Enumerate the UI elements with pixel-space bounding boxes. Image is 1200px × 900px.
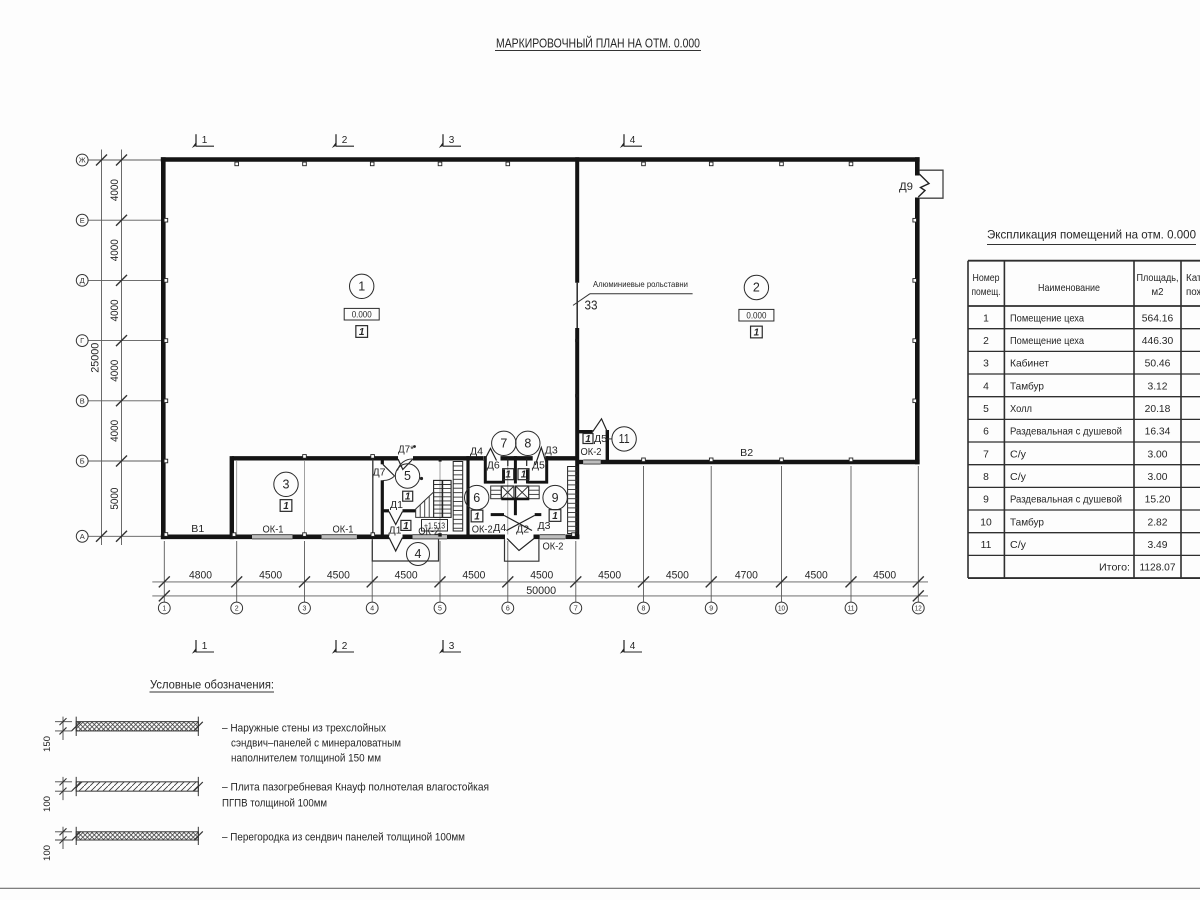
svg-text:1: 1 xyxy=(283,501,289,512)
svg-text:1: 1 xyxy=(983,313,989,324)
svg-text:4000: 4000 xyxy=(109,420,121,442)
svg-text:1: 1 xyxy=(202,135,208,146)
svg-text:ОК-2: ОК-2 xyxy=(418,527,439,538)
svg-text:ОК-2: ОК-2 xyxy=(472,525,493,536)
svg-text:4500: 4500 xyxy=(598,570,621,582)
svg-text:Г: Г xyxy=(80,336,84,345)
svg-text:4800: 4800 xyxy=(189,570,212,582)
svg-text:50.46: 50.46 xyxy=(1145,359,1171,370)
svg-text:Д7: Д7 xyxy=(373,468,386,479)
svg-text:11: 11 xyxy=(981,540,992,551)
svg-text:4500: 4500 xyxy=(530,570,553,582)
svg-text:2: 2 xyxy=(342,135,348,146)
svg-text:3: 3 xyxy=(283,478,290,492)
svg-text:564.16: 564.16 xyxy=(1142,313,1174,324)
svg-text:Условные обозначения:: Условные обозначения: xyxy=(150,680,274,692)
svg-text:50000: 50000 xyxy=(526,585,556,597)
svg-text:7: 7 xyxy=(574,605,578,612)
svg-text:– Плита пазогребневая Кнауф по: – Плита пазогребневая Кнауф полнотелая в… xyxy=(222,782,489,794)
svg-text:Раздевальная с душевой: Раздевальная с душевой xyxy=(1010,427,1122,438)
svg-text:1: 1 xyxy=(474,512,480,523)
svg-text:5: 5 xyxy=(404,469,411,483)
svg-text:7: 7 xyxy=(983,449,989,460)
svg-text:4: 4 xyxy=(630,135,636,146)
svg-text:1128.07: 1128.07 xyxy=(1140,563,1176,574)
svg-text:1: 1 xyxy=(202,641,208,652)
svg-text:ОК-2: ОК-2 xyxy=(581,447,602,458)
svg-text:4: 4 xyxy=(370,605,374,612)
svg-text:1: 1 xyxy=(552,511,558,522)
svg-text:1: 1 xyxy=(405,492,411,503)
svg-text:Кабинет: Кабинет xyxy=(1010,358,1049,370)
svg-text:3: 3 xyxy=(449,135,455,146)
svg-text:МАРКИРОВОЧНЫЙ ПЛАН НА ОТМ. 0.0: МАРКИРОВОЧНЫЙ ПЛАН НА ОТМ. 0.000 xyxy=(496,36,700,51)
svg-text:м2: м2 xyxy=(1152,287,1164,298)
svg-text:1: 1 xyxy=(505,470,511,481)
svg-text:1: 1 xyxy=(359,327,365,338)
svg-text:Холл: Холл xyxy=(1010,404,1032,415)
svg-text:4000: 4000 xyxy=(109,179,121,201)
svg-text:4500: 4500 xyxy=(873,570,896,582)
svg-text:4: 4 xyxy=(630,641,636,652)
svg-text:Д4: Д4 xyxy=(493,523,506,534)
svg-text:1: 1 xyxy=(403,521,409,532)
svg-text:15.20: 15.20 xyxy=(1145,495,1171,506)
svg-text:Б: Б xyxy=(80,457,85,466)
svg-text:3: 3 xyxy=(449,641,455,652)
svg-text:Д3: Д3 xyxy=(538,521,551,532)
svg-text:9: 9 xyxy=(552,491,559,505)
svg-text:5: 5 xyxy=(438,605,442,612)
svg-text:11: 11 xyxy=(848,605,855,612)
svg-text:Экспликация помещений на отм.: Экспликация помещений на отм. 0.000 xyxy=(987,228,1196,242)
svg-text:33: 33 xyxy=(585,299,598,313)
svg-text:4500: 4500 xyxy=(462,570,485,582)
svg-text:ПГПВ толщиной 100мм: ПГПВ толщиной 100мм xyxy=(222,798,327,810)
svg-text:– Перегородка из сендвич панел: – Перегородка из сендвич панелей толщино… xyxy=(222,832,465,844)
svg-text:В: В xyxy=(80,396,85,405)
svg-text:Тамбур: Тамбур xyxy=(1010,380,1044,392)
svg-text:446.30: 446.30 xyxy=(1142,336,1174,347)
svg-text:9: 9 xyxy=(983,495,989,506)
svg-text:А: А xyxy=(80,532,85,541)
svg-text:Д1: Д1 xyxy=(389,526,402,537)
svg-text:помещ.: помещ. xyxy=(972,287,1001,298)
svg-text:Ж: Ж xyxy=(79,156,86,165)
svg-text:3: 3 xyxy=(303,605,307,612)
svg-text:0.000: 0.000 xyxy=(352,309,372,319)
svg-text:Помещение цеха: Помещение цеха xyxy=(1010,336,1084,347)
svg-text:С/у: С/у xyxy=(1010,540,1027,551)
svg-text:3.00: 3.00 xyxy=(1147,449,1167,460)
svg-text:2: 2 xyxy=(342,641,348,652)
svg-text:наполнителем толщиной 150 мм: наполнителем толщиной 150 мм xyxy=(231,753,381,765)
svg-text:4500: 4500 xyxy=(395,570,418,582)
svg-text:С/у: С/у xyxy=(1010,472,1027,483)
svg-text:Д5: Д5 xyxy=(532,461,545,472)
svg-text:8: 8 xyxy=(983,472,989,483)
svg-text:Д2: Д2 xyxy=(516,525,529,536)
svg-text:10: 10 xyxy=(778,605,785,612)
svg-text:6: 6 xyxy=(983,427,989,438)
svg-text:1: 1 xyxy=(585,434,591,445)
svg-text:3.12: 3.12 xyxy=(1147,381,1167,392)
svg-text:150: 150 xyxy=(42,736,52,752)
svg-text:Д4: Д4 xyxy=(470,447,483,458)
svg-text:4: 4 xyxy=(983,381,989,392)
svg-text:4000: 4000 xyxy=(109,239,121,261)
svg-text:Д5: Д5 xyxy=(594,434,607,445)
svg-text:1: 1 xyxy=(521,470,527,481)
svg-text:В1: В1 xyxy=(191,524,204,535)
svg-text:Номер: Номер xyxy=(973,273,1000,284)
svg-text:Помещение цеха: Помещение цеха xyxy=(1010,313,1084,324)
svg-text:6: 6 xyxy=(473,491,480,505)
svg-text:Наименование: Наименование xyxy=(1038,283,1100,294)
svg-text:1: 1 xyxy=(754,328,760,339)
svg-text:Категория: Категория xyxy=(1186,273,1200,284)
svg-text:Д9: Д9 xyxy=(899,181,913,193)
svg-text:4500: 4500 xyxy=(327,570,350,582)
svg-text:Д: Д xyxy=(80,276,85,285)
svg-text:Д1: Д1 xyxy=(390,500,403,511)
svg-text:4500: 4500 xyxy=(259,570,282,582)
svg-text:10: 10 xyxy=(980,517,992,528)
svg-text:2: 2 xyxy=(235,605,239,612)
svg-text:9: 9 xyxy=(709,605,713,612)
svg-text:4000: 4000 xyxy=(109,360,121,382)
svg-text:16.34: 16.34 xyxy=(1145,427,1171,438)
svg-text:сэндвич–панелей с минераловатн: сэндвич–панелей с минераловатным xyxy=(231,738,401,750)
svg-text:Д7*: Д7* xyxy=(398,445,414,456)
svg-text:ОК-1: ОК-1 xyxy=(333,525,354,536)
svg-text:С/у: С/у xyxy=(1010,449,1027,460)
svg-text:ОК-2: ОК-2 xyxy=(543,541,564,552)
svg-text:8: 8 xyxy=(524,437,531,451)
svg-text:11: 11 xyxy=(619,432,630,446)
svg-text:4500: 4500 xyxy=(666,570,689,582)
svg-text:4700: 4700 xyxy=(735,570,758,582)
svg-text:25000: 25000 xyxy=(90,343,102,373)
svg-text:– Наружные стены из трехслойны: – Наружные стены из трехслойных xyxy=(222,723,386,735)
svg-text:Д3: Д3 xyxy=(545,446,558,457)
svg-text:Алюминиевые рольставни: Алюминиевые рольставни xyxy=(593,279,688,289)
svg-text:3.49: 3.49 xyxy=(1147,540,1167,551)
svg-text:3.00: 3.00 xyxy=(1147,472,1167,483)
svg-text:Е: Е xyxy=(80,216,85,225)
svg-text:4500: 4500 xyxy=(805,570,828,582)
svg-text:5: 5 xyxy=(983,404,989,415)
svg-text:ОК-1: ОК-1 xyxy=(263,525,284,536)
svg-text:Д6: Д6 xyxy=(487,461,500,472)
svg-text:3: 3 xyxy=(983,359,989,370)
svg-text:5000: 5000 xyxy=(109,488,121,510)
svg-text:Площадь,: Площадь, xyxy=(1137,273,1179,284)
svg-text:20.18: 20.18 xyxy=(1145,404,1171,415)
svg-text:4000: 4000 xyxy=(109,300,121,322)
svg-text:2: 2 xyxy=(983,336,989,347)
svg-text:7: 7 xyxy=(500,437,507,451)
svg-text:пожарн: пожарн xyxy=(1186,287,1200,298)
svg-text:Тамбур: Тамбур xyxy=(1010,516,1044,528)
svg-text:1: 1 xyxy=(162,605,166,612)
svg-text:12: 12 xyxy=(915,605,922,612)
svg-text:В2: В2 xyxy=(740,448,753,459)
svg-text:2: 2 xyxy=(753,281,760,295)
svg-text:8: 8 xyxy=(642,605,646,612)
svg-text:6: 6 xyxy=(506,605,510,612)
svg-text:0.000: 0.000 xyxy=(746,310,766,320)
svg-text:4: 4 xyxy=(415,547,422,561)
svg-text:2.82: 2.82 xyxy=(1147,517,1167,528)
svg-text:Раздевальная с душевой: Раздевальная с душевой xyxy=(1010,495,1122,506)
svg-text:1: 1 xyxy=(358,280,365,294)
svg-text:100: 100 xyxy=(42,796,52,812)
svg-text:Итого:: Итого: xyxy=(1099,563,1130,574)
svg-text:100: 100 xyxy=(42,845,52,861)
